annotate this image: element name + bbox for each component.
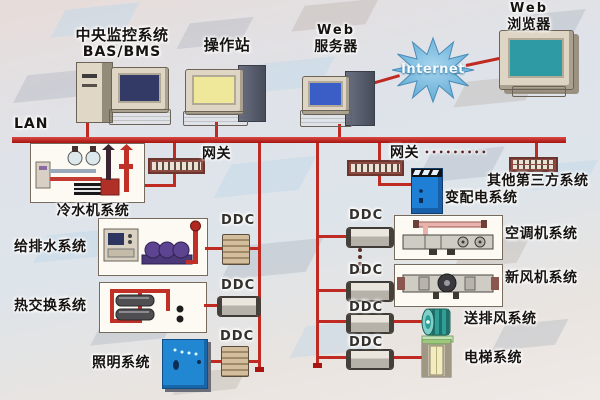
operator-station-label: 操作站 bbox=[196, 37, 258, 54]
chiller-system-label: 冷水机系统 bbox=[47, 203, 139, 219]
exhaust-fan-label: 送排风系统 bbox=[464, 311, 537, 327]
gateway-power-line bbox=[378, 183, 412, 186]
web-browser-monitor-base-icon bbox=[512, 86, 566, 97]
ac-ddc-device-icon bbox=[346, 227, 394, 248]
central-station-drop-line bbox=[86, 121, 89, 137]
ddc-label-elevator: DDC bbox=[349, 336, 383, 351]
gateway-right-dots: ••••••••• bbox=[424, 148, 488, 157]
gateway-chiller-line bbox=[143, 184, 176, 187]
gateway-right-label: 网关 ••••••••• bbox=[390, 145, 488, 161]
power-distribution-label: 变配电系统 bbox=[445, 190, 518, 206]
third-party-device-icon bbox=[509, 157, 558, 172]
left-trunk-line bbox=[258, 143, 261, 372]
exhaust-ddc-device-icon bbox=[346, 313, 394, 334]
freshair-schematic-icon bbox=[395, 265, 499, 303]
central-station-label-line2: BAS/BMS bbox=[58, 44, 186, 60]
central-station-tower-icon bbox=[76, 62, 113, 123]
gateway-left-drop-line bbox=[173, 143, 176, 158]
freshair-system-box bbox=[394, 264, 503, 307]
third-party-label: 其他第三方系统 bbox=[487, 173, 589, 189]
elevator-ddc-device-icon bbox=[346, 349, 394, 370]
web-server-label-line1: Web bbox=[306, 24, 366, 39]
gateway-left-label: 网关 bbox=[202, 146, 231, 162]
ddc-label-heat: DDC bbox=[221, 279, 255, 294]
operator-station-monitor-icon bbox=[185, 69, 244, 115]
ac-trunk-line bbox=[318, 235, 347, 238]
lighting-ddc-device-icon bbox=[221, 346, 249, 377]
ddc-label-ac: DDC bbox=[349, 209, 383, 224]
central-station-label: 中央监控系统 BAS/BMS bbox=[58, 27, 186, 60]
gateway-left-device-icon bbox=[148, 158, 205, 174]
freshair-trunk-line bbox=[318, 289, 347, 292]
lighting-panel-icon bbox=[162, 339, 208, 389]
water-supply-schematic-icon bbox=[99, 219, 204, 272]
heat-exchange-box bbox=[99, 282, 207, 333]
lan-label: LAN bbox=[14, 116, 48, 132]
water-supply-box bbox=[98, 218, 208, 276]
ddc-label-freshair: DDC bbox=[349, 264, 383, 279]
central-station-label-line1: 中央监控系统 bbox=[58, 27, 186, 44]
web-browser-monitor-icon bbox=[499, 30, 574, 90]
ac-system-label: 空调机系统 bbox=[505, 226, 578, 242]
heat-exchange-schematic-icon bbox=[100, 283, 203, 329]
lighting-label: 照明系统 bbox=[92, 355, 150, 371]
ac-schematic-icon bbox=[395, 216, 499, 256]
water-supply-label: 给排水系统 bbox=[14, 239, 87, 255]
web-server-label-line2: 服务器 bbox=[306, 39, 366, 55]
ddc-label-lighting: DDC bbox=[220, 330, 254, 345]
freshair-ddc-device-icon bbox=[346, 281, 394, 302]
bas-network-diagram: 中央监控系统 BAS/BMS 操作站 Web 服务器 bbox=[0, 0, 600, 400]
operator-station-keyboard-icon bbox=[183, 111, 248, 126]
lan-bus-line bbox=[12, 137, 566, 143]
chiller-schematic-icon bbox=[31, 144, 141, 199]
heat-exchange-label: 热交换系统 bbox=[14, 298, 87, 314]
central-station-monitor-icon bbox=[111, 67, 169, 113]
third-party-drop-line bbox=[535, 143, 538, 157]
water-ddc-device-icon bbox=[222, 234, 250, 265]
left-trunk-endcap bbox=[255, 367, 264, 372]
web-server-base-icon bbox=[300, 110, 352, 127]
web-browser-label-line2: 浏览器 bbox=[496, 17, 562, 33]
gateway-right-device-icon bbox=[347, 160, 404, 176]
elevator-label: 电梯系统 bbox=[464, 350, 522, 366]
right-trunk-line bbox=[316, 143, 319, 368]
web-browser-label-line1: Web bbox=[496, 2, 562, 17]
internet-label: Internet bbox=[391, 63, 475, 78]
ddc-label-exhaust: DDC bbox=[349, 301, 383, 316]
water-ddc-line bbox=[205, 247, 223, 250]
elevator-trunk-line bbox=[318, 356, 347, 359]
elevator-icon bbox=[421, 339, 452, 378]
exhaust-trunk-line bbox=[318, 320, 347, 323]
chiller-system-box bbox=[30, 143, 145, 203]
power-distribution-cabinet-icon bbox=[411, 168, 443, 214]
freshair-system-label: 新风机系统 bbox=[505, 270, 578, 286]
bg-diamond bbox=[214, 156, 316, 198]
gateway-right-drop-line bbox=[378, 143, 381, 161]
central-station-keyboard-icon bbox=[109, 109, 171, 125]
ac-system-box bbox=[394, 215, 503, 260]
ddc-label-water: DDC bbox=[221, 214, 255, 229]
web-server-label: Web 服务器 bbox=[306, 24, 366, 55]
web-browser-label: Web 浏览器 bbox=[496, 2, 562, 33]
right-trunk-endcap bbox=[313, 363, 322, 368]
heat-ddc-device-icon bbox=[217, 296, 261, 317]
internet-cloud-icon: Internet bbox=[391, 36, 475, 104]
